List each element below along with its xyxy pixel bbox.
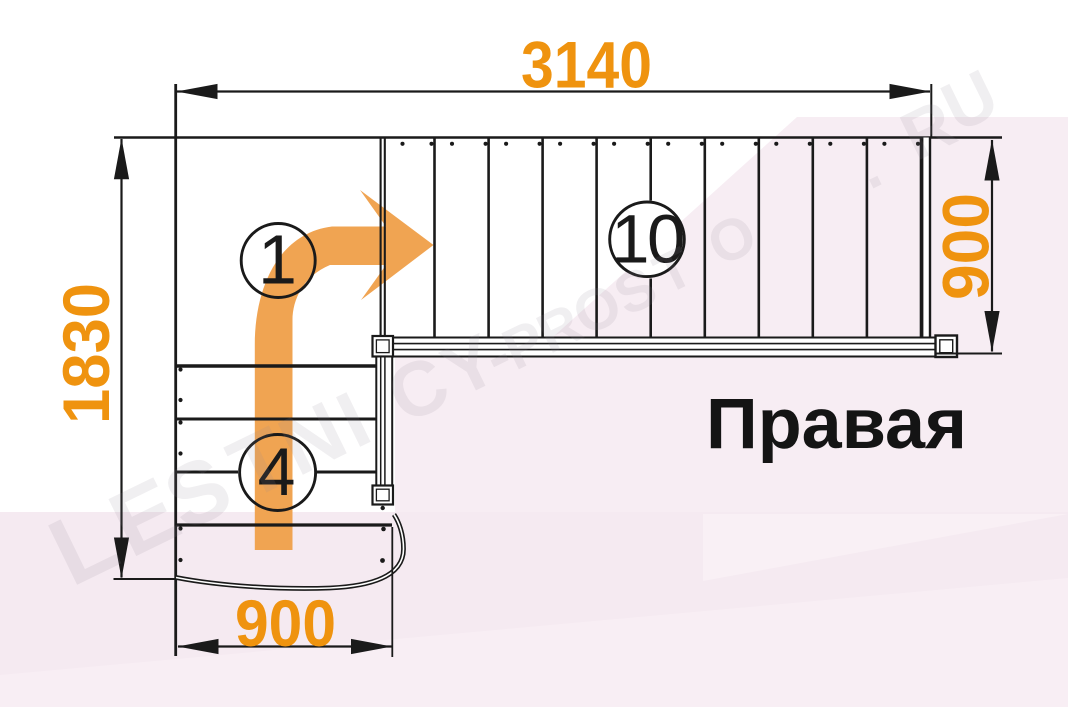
svg-text:1: 1 [258,221,297,299]
svg-text:900: 900 [235,586,336,660]
svg-text:900: 900 [929,193,1003,300]
svg-text:1830: 1830 [49,283,123,424]
svg-text:3140: 3140 [521,28,652,102]
svg-text:Правая: Правая [706,385,967,464]
